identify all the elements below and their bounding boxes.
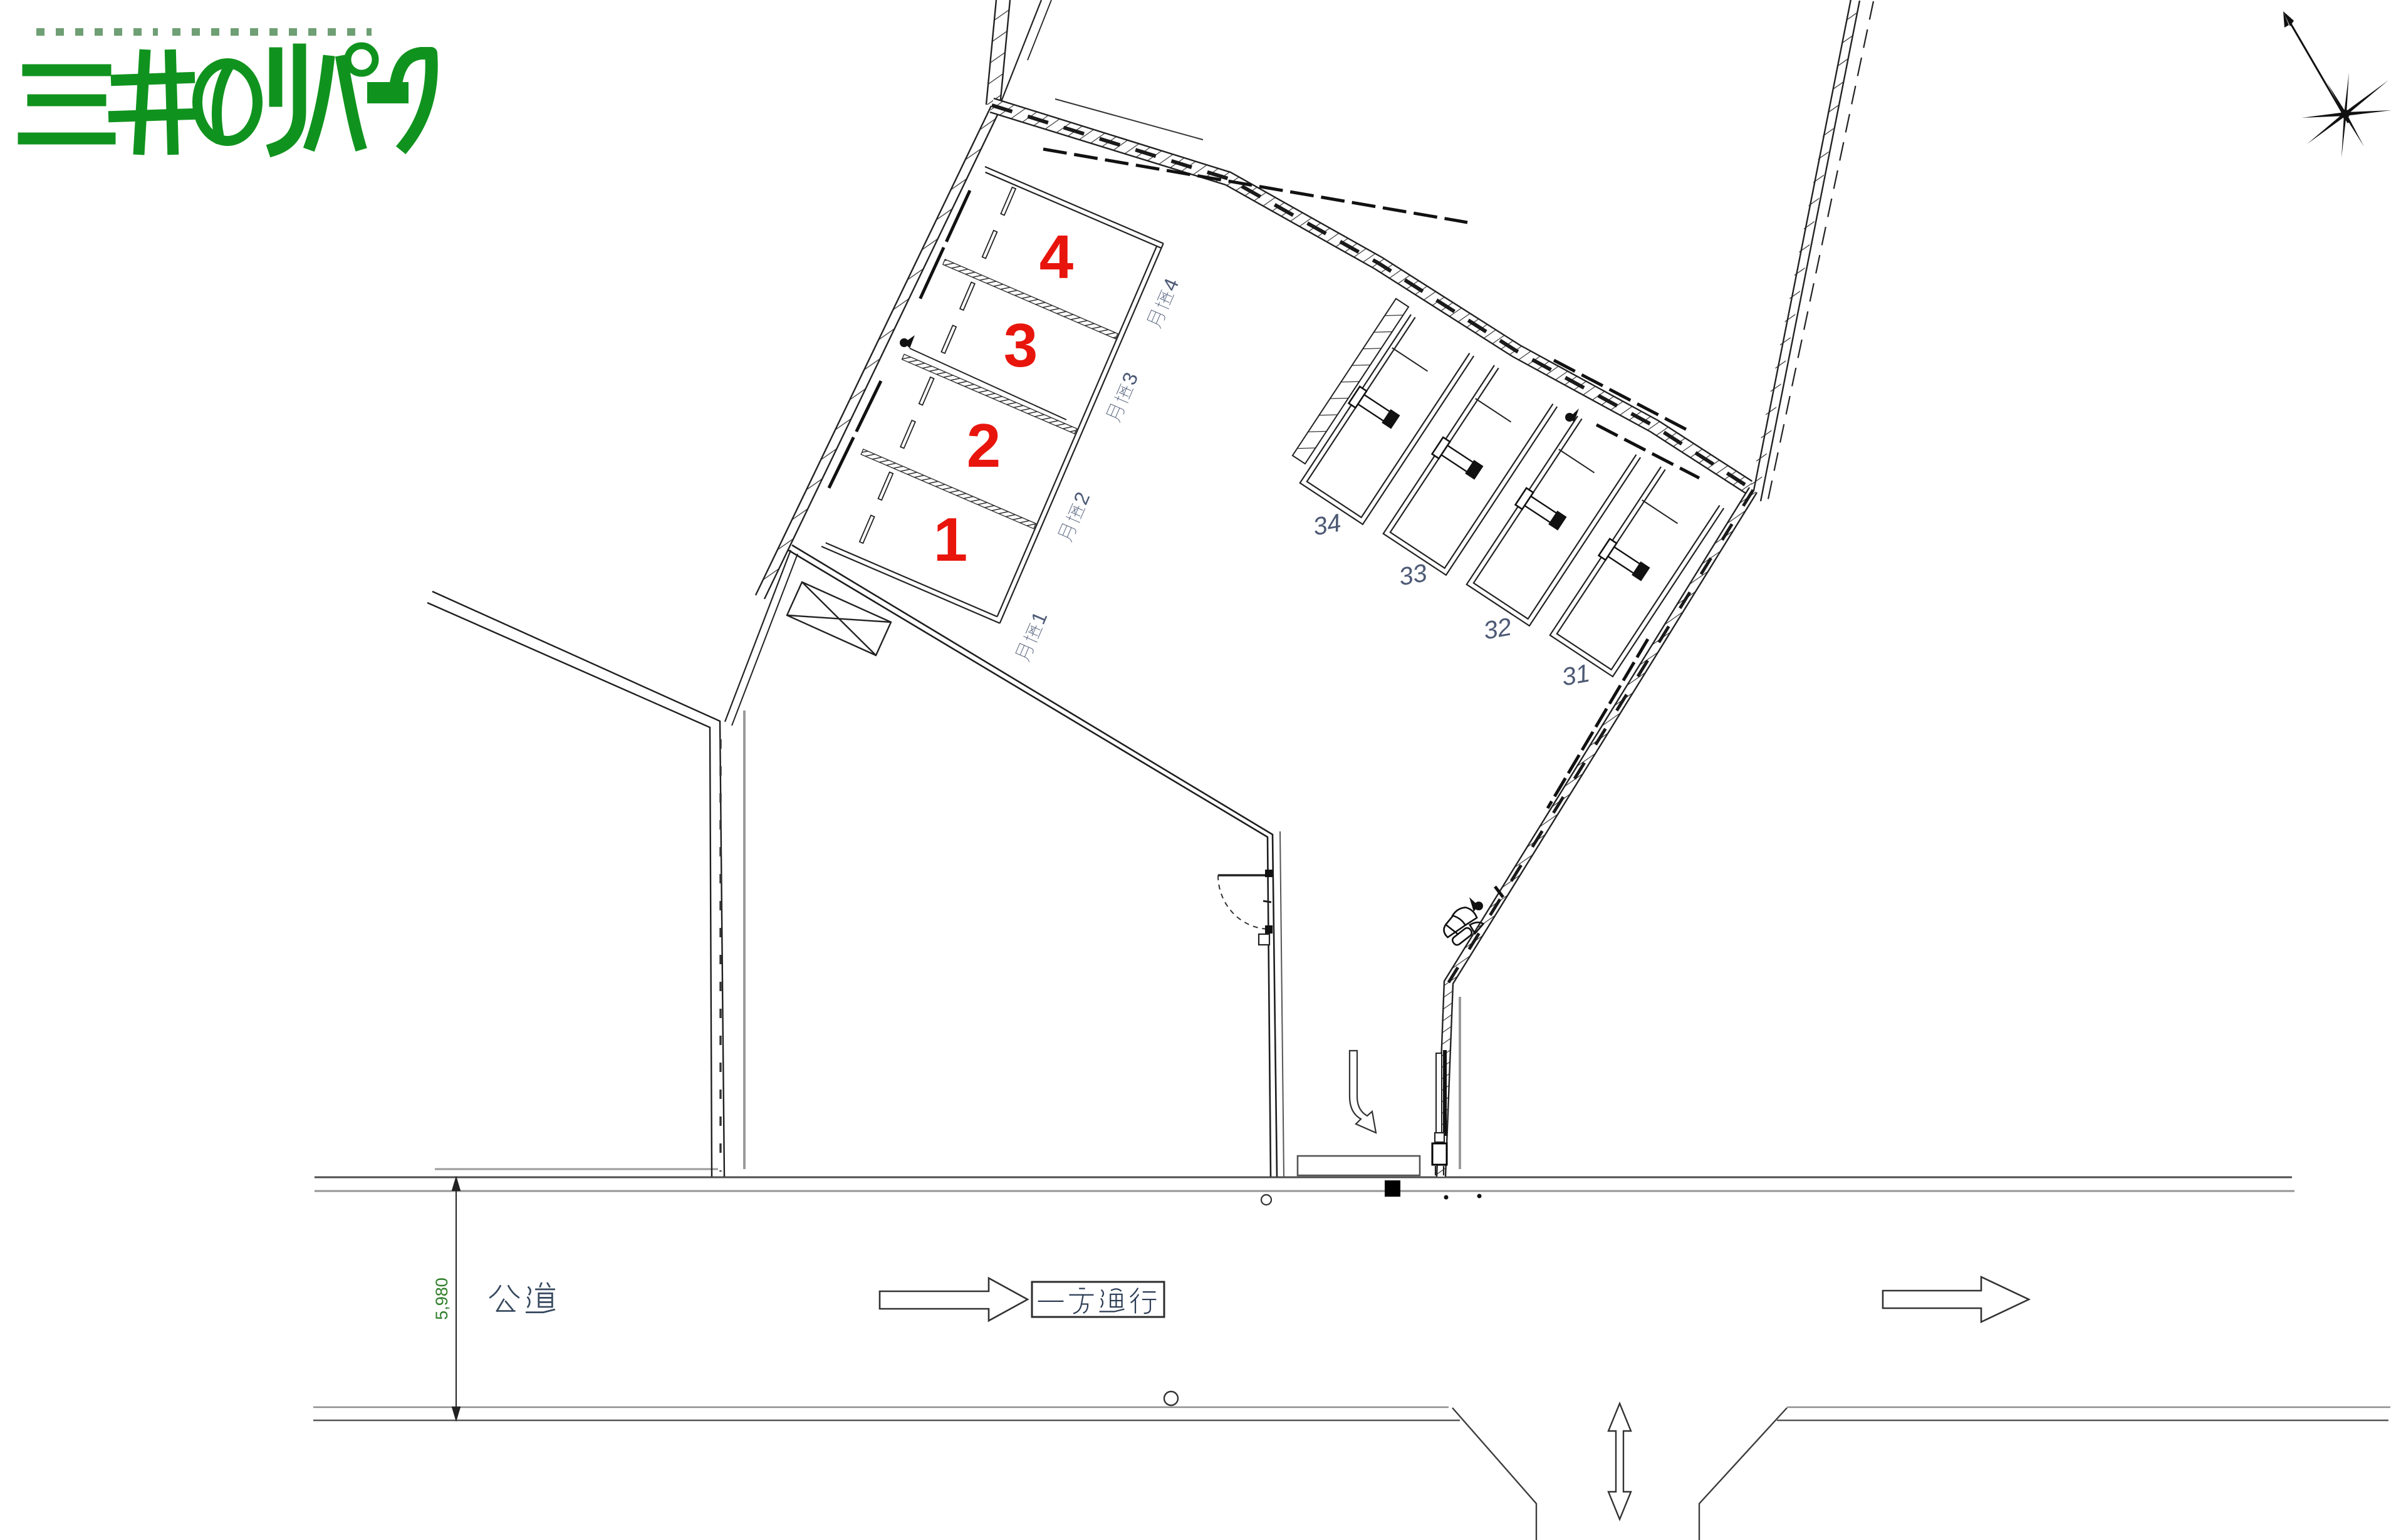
svg-text:5,980: 5,980 [432, 1277, 451, 1320]
svg-text:1: 1 [934, 505, 968, 574]
svg-text:3: 3 [1004, 311, 1038, 380]
svg-text:33: 33 [1397, 559, 1429, 591]
svg-text:32: 32 [1481, 613, 1513, 645]
svg-text:31: 31 [1560, 659, 1591, 691]
svg-text:2: 2 [967, 411, 1001, 480]
svg-text:4: 4 [1039, 222, 1074, 291]
svg-text:34: 34 [1311, 509, 1343, 541]
